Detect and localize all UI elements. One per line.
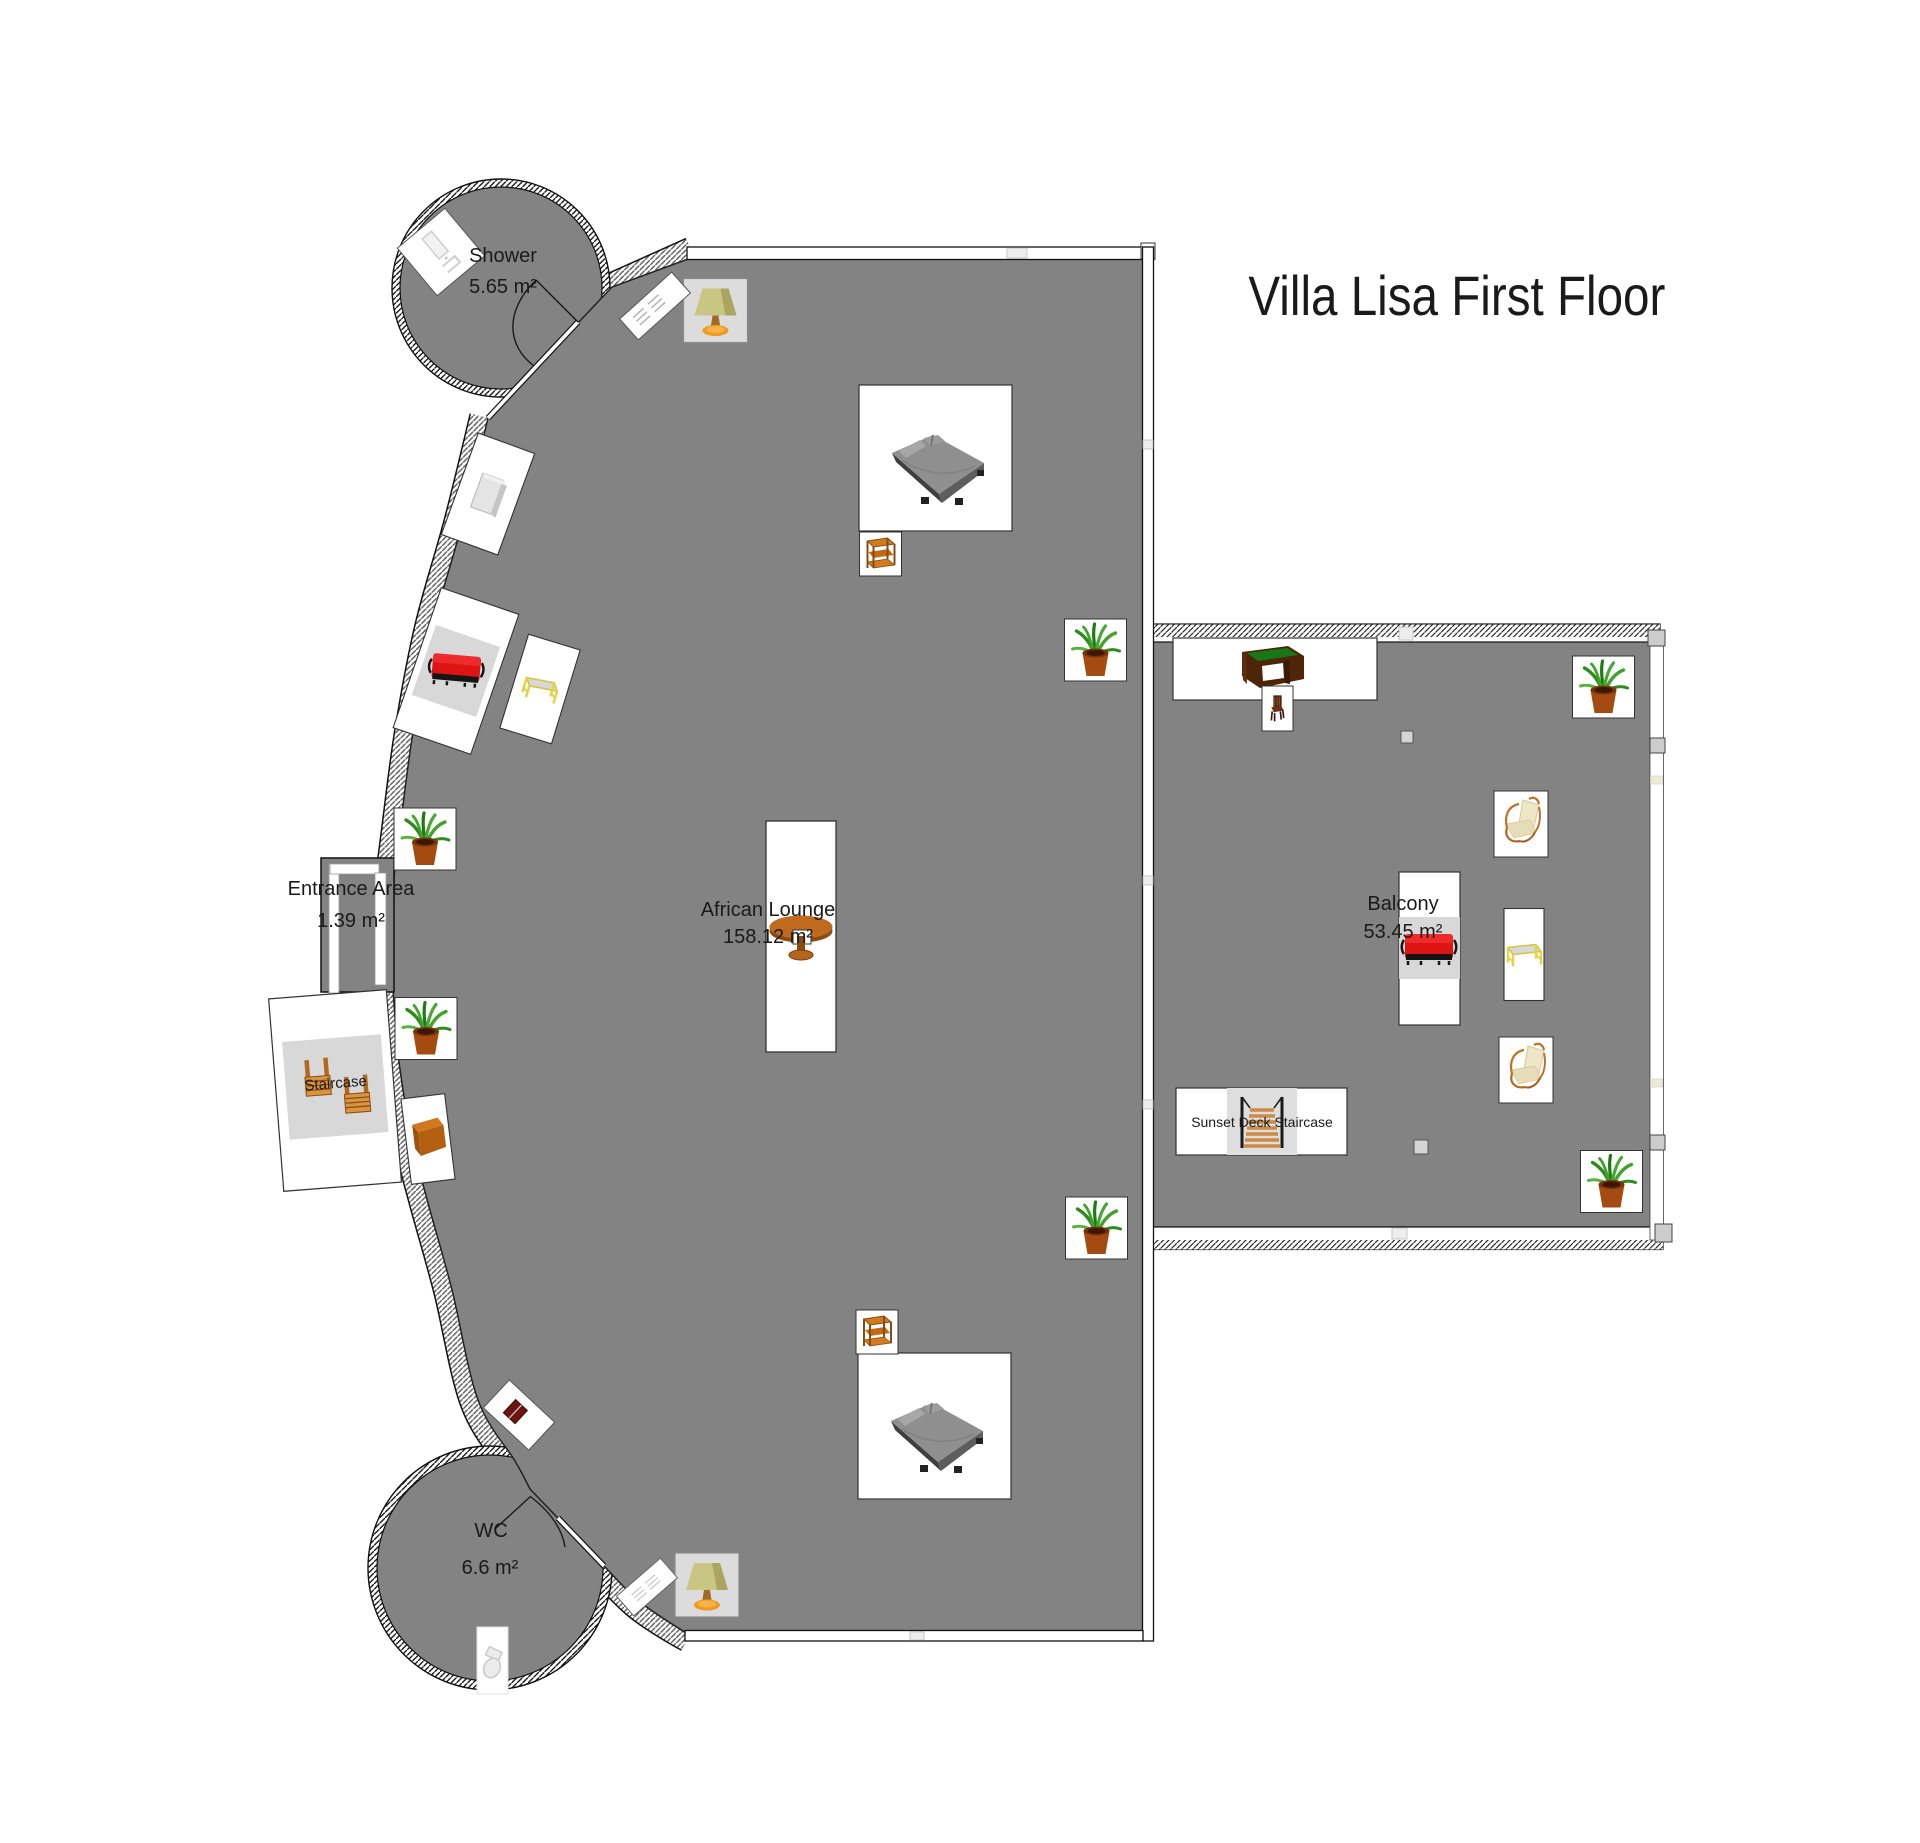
svg-text:Balcony: Balcony [1367, 893, 1438, 915]
svg-text:1.39 m²: 1.39 m² [317, 910, 385, 932]
svg-text:Shower: Shower [469, 245, 537, 267]
svg-text:African Lounge: African Lounge [701, 899, 836, 921]
svg-text:6.6 m²: 6.6 m² [462, 1557, 519, 1579]
svg-text:53.45 m²: 53.45 m² [1364, 921, 1443, 943]
svg-text:Sunset Deck Staircase: Sunset Deck Staircase [1191, 1114, 1333, 1130]
svg-text:5.65 m²: 5.65 m² [469, 276, 537, 298]
svg-text:Villa Lisa First Floor: Villa Lisa First Floor [1248, 265, 1665, 327]
svg-text:WC: WC [474, 1520, 507, 1542]
svg-text:158.12 m²: 158.12 m² [723, 926, 813, 948]
svg-text:Entrance Area: Entrance Area [288, 878, 416, 900]
